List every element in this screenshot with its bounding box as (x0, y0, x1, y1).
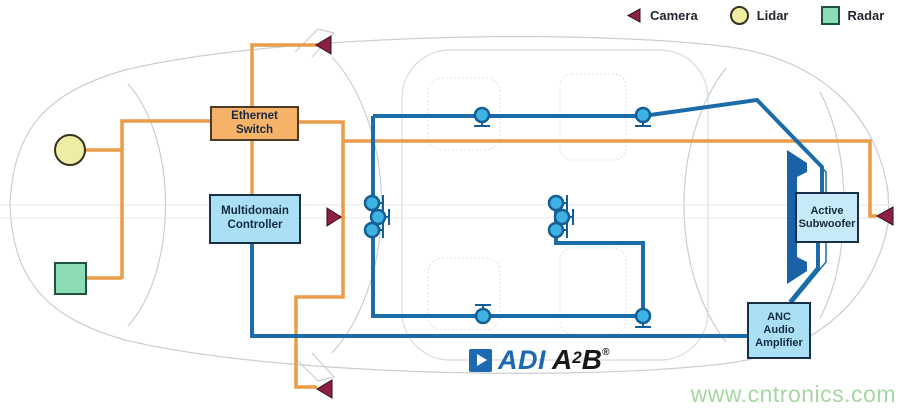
vehicle-sensor-audio-diagram: Ethernet Switch Multidomain Controller A… (0, 0, 900, 409)
speaker-node (635, 108, 651, 126)
speaker-node (635, 309, 651, 327)
adi-a2b-logo: ADI A2B® (469, 344, 609, 376)
multidomain-controller-box: Multidomain Controller (209, 194, 301, 244)
watermark-text: www.cntronics.com (691, 381, 896, 408)
legend-item-camera: Camera (626, 7, 698, 24)
ethernet-switch-box: Ethernet Switch (210, 106, 299, 141)
anc-amplifier-label: ANC Audio Amplifier (751, 311, 807, 350)
legend-label-radar: Radar (848, 8, 885, 23)
speaker-node (549, 195, 567, 211)
anc-amplifier-box: ANC Audio Amplifier (747, 302, 811, 359)
radar-legend-icon (821, 6, 840, 25)
lidar-legend-icon (730, 6, 749, 25)
legend-label-lidar: Lidar (757, 8, 789, 23)
a2b-logo-text: A2B® (552, 344, 609, 376)
adi-play-icon (469, 349, 492, 372)
legend-item-radar: Radar (821, 6, 885, 25)
legend-label-camera: Camera (650, 8, 698, 23)
radar-sensor (55, 263, 86, 294)
camera-icon-bottom-mirror (317, 380, 332, 398)
active-subwoofer-label: Active Subwoofer (797, 205, 857, 231)
multidomain-controller-label: Multidomain Controller (214, 205, 296, 232)
speaker-node (475, 305, 491, 323)
speaker-node (474, 108, 490, 126)
legend: Camera Lidar Radar (626, 6, 884, 25)
adi-logo-text: ADI (498, 345, 546, 376)
camera-legend-icon (626, 7, 642, 24)
legend-item-lidar: Lidar (730, 6, 789, 25)
active-subwoofer-box: Active Subwoofer (795, 192, 859, 243)
ethernet-switch-label: Ethernet Switch (224, 110, 286, 137)
camera-icon-rear (877, 207, 893, 225)
lidar-sensor (55, 135, 85, 165)
camera-icon-top-mirror (316, 36, 331, 54)
speaker-node (365, 195, 383, 211)
camera-icon-dashboard (327, 208, 341, 226)
